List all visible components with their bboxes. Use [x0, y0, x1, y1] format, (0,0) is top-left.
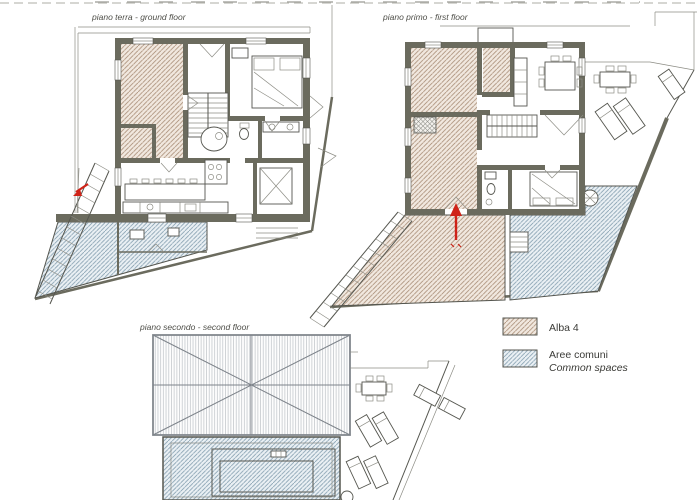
lounge-chair	[658, 69, 685, 99]
stair-shaft	[414, 117, 436, 133]
second-floor-label: piano secondo - second floor	[139, 322, 250, 332]
legend-common-sublabel: Common spaces	[549, 362, 629, 374]
common-spaces-swatch	[503, 350, 537, 367]
terrace-table	[600, 72, 630, 87]
terrace-furniture	[271, 451, 286, 457]
second-floor-plan: piano secondo - second floor	[139, 322, 465, 500]
washbasin-counter	[263, 122, 299, 132]
wc	[240, 123, 249, 128]
legend: Alba 4 Aree comuni Common spaces	[503, 318, 629, 374]
dining-table	[545, 62, 575, 90]
lounge-chairs	[346, 449, 388, 495]
gate-door-swing	[310, 96, 323, 118]
lounge-chairs	[595, 93, 645, 145]
shower-basin	[201, 127, 227, 151]
first-staircase	[487, 115, 537, 137]
alba4-swatch	[503, 318, 537, 335]
first-alba4-room	[483, 48, 510, 92]
second-common-terrace	[163, 437, 353, 500]
first-kitchen	[514, 56, 582, 106]
ground-common-terrace	[35, 214, 207, 298]
ground-floor-label: piano terra - ground floor	[91, 12, 187, 22]
ground-storage-room	[256, 168, 298, 238]
floor-plan-drawing: piano terra - ground floor	[0, 0, 700, 500]
first-bedroom	[530, 172, 577, 206]
ground-bedroom	[232, 48, 302, 108]
roof	[153, 335, 358, 435]
terrace-table-round	[341, 491, 353, 500]
floor-plan-sheet: piano terra - ground floor	[0, 0, 700, 500]
terrace-furniture	[130, 230, 144, 239]
desk	[232, 48, 248, 58]
stove-island	[205, 160, 227, 184]
ground-floor-plan: piano terra - ground floor	[35, 5, 336, 304]
dining-table	[125, 184, 205, 200]
lounge-chairs	[355, 407, 398, 453]
terrace-furniture	[168, 228, 179, 236]
first-roof-terrace-furniture	[594, 66, 685, 145]
wc	[487, 184, 495, 195]
bed	[252, 56, 302, 108]
sink	[485, 172, 496, 179]
first-floor-plan: piano primo - first floor	[310, 12, 697, 327]
legend-alba4-label: Alba 4	[549, 322, 579, 334]
terrace-table	[362, 382, 386, 395]
kitchen-counter	[123, 202, 228, 213]
second-terrace-furniture	[346, 376, 465, 495]
skylight-bump	[478, 28, 513, 43]
gate-door-swing	[318, 148, 336, 167]
ground-kitchen-dining	[123, 160, 228, 213]
legend-common-label: Aree comuni	[549, 349, 608, 361]
sheet-top-border	[0, 2, 700, 3]
first-floor-label: piano primo - first floor	[382, 12, 469, 22]
first-bathroom	[485, 172, 496, 205]
